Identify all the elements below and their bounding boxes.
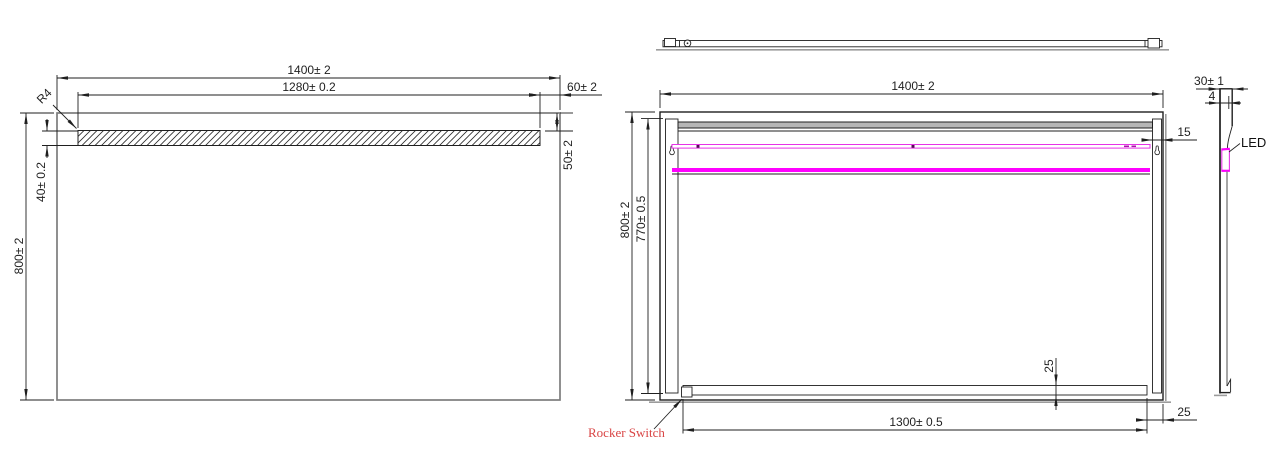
side-led-module	[1222, 149, 1230, 171]
back-view: 1400± 2 800± 2 770± 0.5 15 25 25 1300± 0…	[588, 79, 1197, 440]
top-view-bar	[663, 41, 1162, 47]
depth-dim: 30± 1	[1194, 74, 1224, 88]
top-frame-rail	[678, 122, 1153, 128]
led-label: LED	[1241, 135, 1266, 150]
led-leader	[1229, 144, 1240, 153]
front-led-window-width-dim: 1280± 0.2	[282, 80, 336, 94]
side-view: 30± 1 4 LED	[1194, 74, 1266, 395]
front-width-dim: 1400± 2	[287, 63, 331, 77]
back-panel-outline	[660, 112, 1163, 400]
cad-drawing-mirror: 1400± 2 1280± 0.2 60± 2 50± 2 40± 0.2 80…	[0, 0, 1269, 457]
rocker-switch-label: Rocker Switch	[588, 425, 665, 440]
back-width-dim: 1400± 2	[891, 79, 935, 93]
top-view-end-block	[1148, 39, 1160, 49]
mirror-outline	[57, 113, 560, 400]
top-view-switch-block	[665, 39, 676, 47]
back-extension-lines	[625, 90, 1163, 434]
front-right-offset-dim: 60± 2	[567, 80, 597, 94]
led-strip-thin	[672, 145, 1150, 149]
front-dimension-lines	[26, 78, 602, 400]
front-view: 1400± 2 1280± 0.2 60± 2 50± 2 40± 0.2 80…	[12, 63, 602, 400]
rail-width-dim: 15	[1177, 125, 1191, 139]
led-connector-dot	[697, 145, 700, 148]
led-connector-dot	[912, 145, 915, 148]
front-extension-lines	[20, 75, 573, 400]
bottom-rail-width-dim: 1300± 0.5	[889, 415, 943, 429]
side-profile-curve	[1227, 126, 1232, 148]
bottom-rail	[683, 386, 1147, 396]
back-height-dim: 800± 2	[618, 201, 632, 238]
front-right-height-dim: 50± 2	[561, 140, 575, 170]
rail-height-dim: 770± 0.5	[634, 195, 648, 242]
bottom-right-gap-dim: 25	[1177, 405, 1191, 419]
front-height-dim: 800± 2	[12, 237, 26, 274]
led-diffuser-strip	[78, 131, 540, 146]
rocker-switch	[682, 387, 693, 397]
corner-radius-label: R4	[34, 86, 55, 107]
front-strip-height-dim: 40± 0.2	[34, 162, 48, 202]
led-strip-thick	[672, 168, 1150, 172]
hanger-rail-left	[666, 119, 679, 393]
bottom-rail-offset-dim: 25	[1042, 359, 1056, 373]
drawing-sheet: 1400± 2 1280± 0.2 60± 2 50± 2 40± 0.2 80…	[0, 0, 1269, 457]
top-view	[656, 39, 1169, 50]
hanger-rail-right	[1153, 119, 1162, 393]
glass-thickness-dim: 4	[1209, 89, 1216, 103]
